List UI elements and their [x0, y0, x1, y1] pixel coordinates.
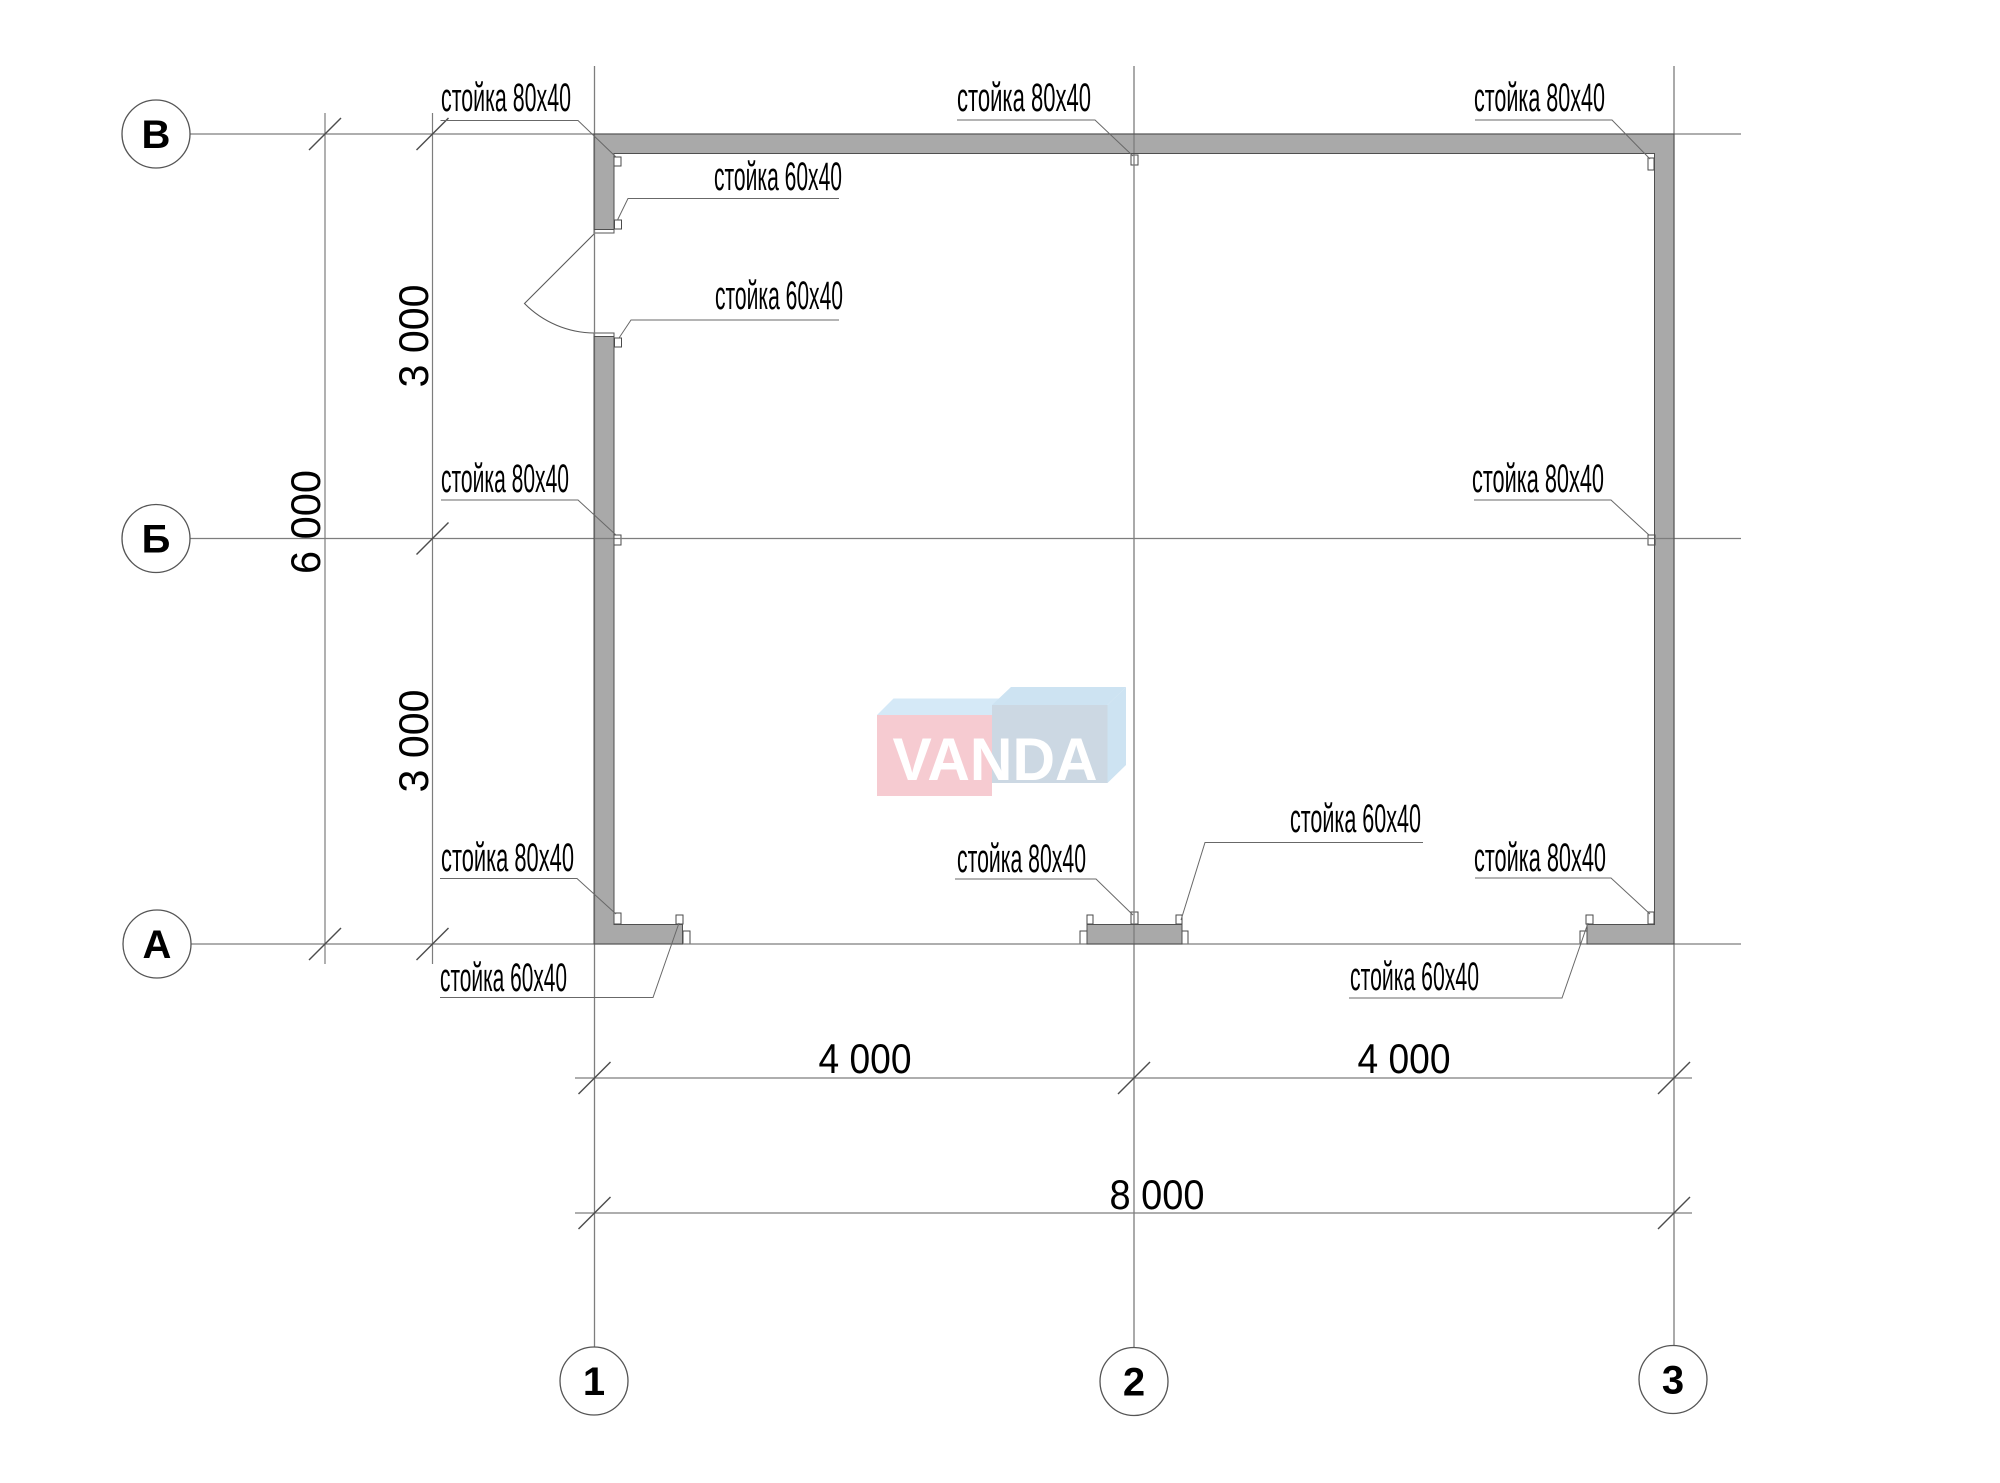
svg-text:стойка 80х40: стойка 80х40: [441, 76, 571, 120]
svg-text:VANDA: VANDA: [893, 726, 1098, 793]
svg-text:стойка 80х40: стойка 80х40: [1474, 76, 1605, 120]
svg-text:1: 1: [583, 1360, 605, 1404]
svg-text:стойка 60х40: стойка 60х40: [715, 274, 843, 318]
svg-text:3 000: 3 000: [390, 285, 437, 388]
svg-text:стойка 60х40: стойка 60х40: [1350, 955, 1479, 999]
svg-text:4 000: 4 000: [819, 1035, 912, 1082]
svg-text:Б: Б: [142, 518, 171, 562]
svg-text:3: 3: [1662, 1359, 1684, 1403]
svg-text:А: А: [143, 923, 172, 967]
svg-text:стойка 60х40: стойка 60х40: [1290, 797, 1421, 841]
svg-text:стойка 60х40: стойка 60х40: [440, 956, 567, 1000]
svg-text:6 000: 6 000: [282, 470, 329, 574]
svg-text:3 000: 3 000: [390, 690, 437, 793]
svg-text:стойка 80х40: стойка 80х40: [957, 76, 1091, 120]
svg-text:2: 2: [1123, 1361, 1145, 1405]
svg-text:стойка 80х40: стойка 80х40: [1474, 836, 1606, 880]
svg-text:стойка 80х40: стойка 80х40: [1472, 457, 1604, 501]
svg-text:стойка 80х40: стойка 80х40: [957, 837, 1086, 881]
svg-text:В: В: [142, 113, 171, 157]
svg-text:стойка 80х40: стойка 80х40: [441, 457, 569, 501]
svg-text:4 000: 4 000: [1358, 1035, 1451, 1082]
svg-text:8 000: 8 000: [1110, 1171, 1205, 1218]
svg-text:стойка 80х40: стойка 80х40: [441, 836, 574, 880]
svg-text:стойка 60х40: стойка 60х40: [714, 155, 842, 199]
